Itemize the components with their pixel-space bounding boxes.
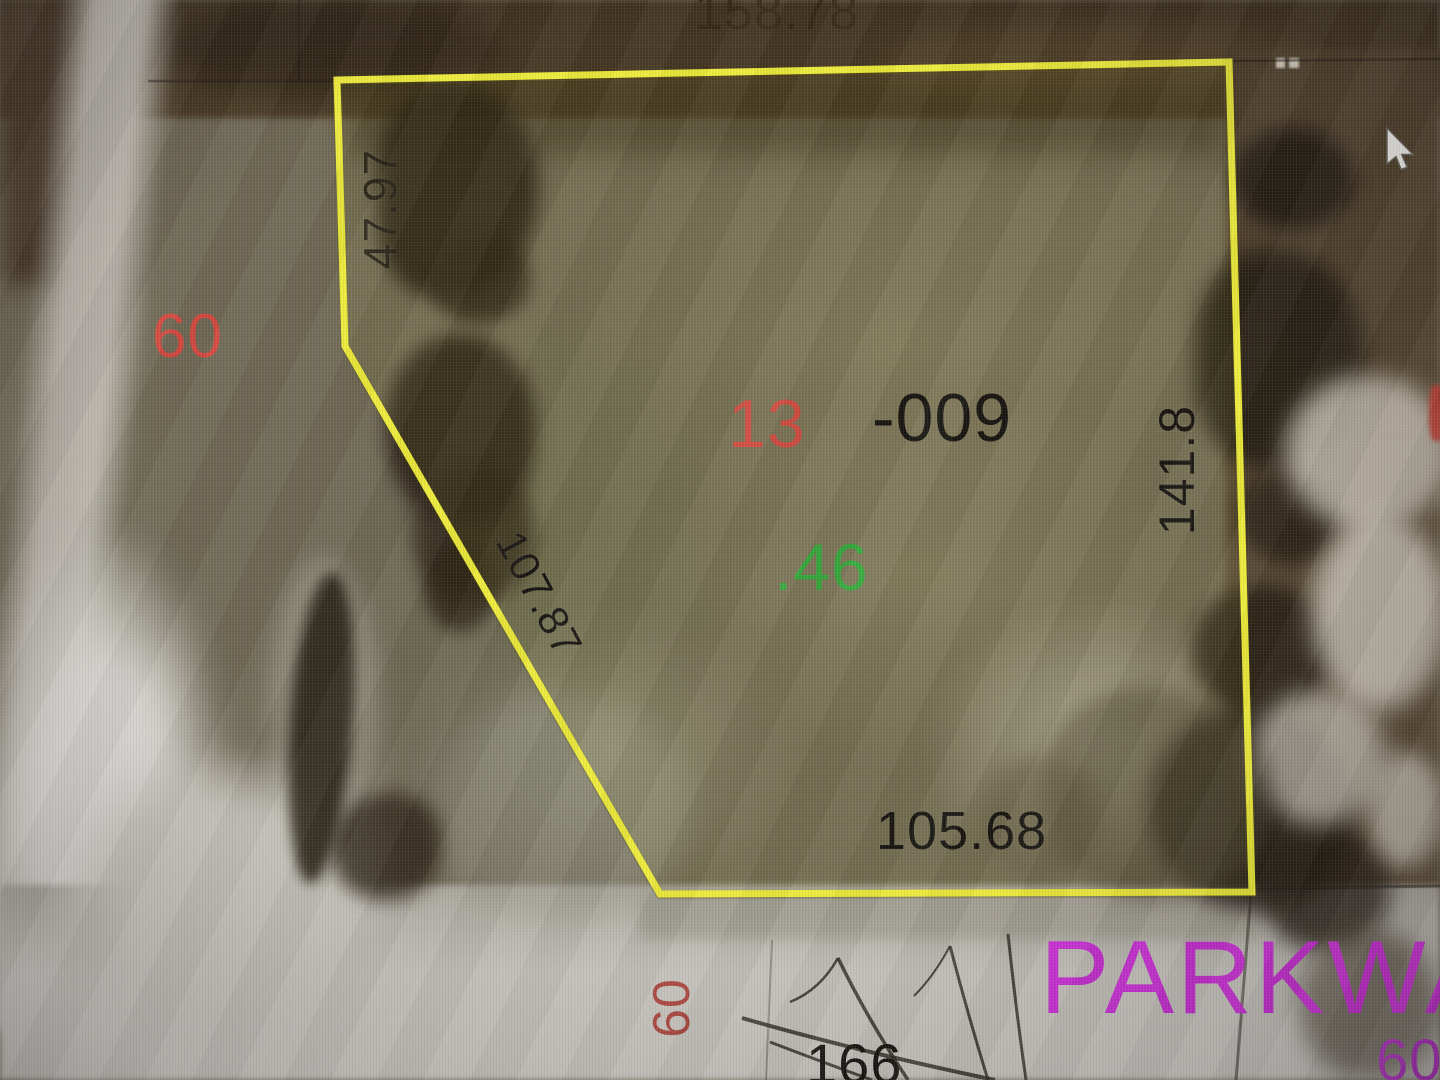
acreage-label: .46: [774, 534, 869, 600]
road-width-south-label: 60: [646, 978, 698, 1038]
street-name-label: PARKWA: [1040, 926, 1440, 1030]
mouse-cursor-icon: [1384, 126, 1418, 176]
dim-north-label: 158.78: [694, 0, 859, 38]
parcel-boundary[interactable]: [337, 62, 1252, 894]
dim-south-label: 105.68: [876, 804, 1047, 858]
map-canvas[interactable]: 158.78 47.97 107.87 141.8 105.68 13 -009…: [0, 0, 1440, 1080]
road-width-corner-label: 60: [1376, 1032, 1440, 1080]
lot-166-label: 166: [806, 1036, 902, 1080]
road-width-west-label: 60: [152, 306, 223, 368]
parcel-id-label: -009: [872, 384, 1012, 452]
dim-east-label: 141.8: [1152, 405, 1202, 535]
parcel-linework: [0, 0, 1440, 1080]
dim-west-label: 47.97: [357, 149, 403, 269]
lot-number-label: 13: [728, 390, 806, 458]
